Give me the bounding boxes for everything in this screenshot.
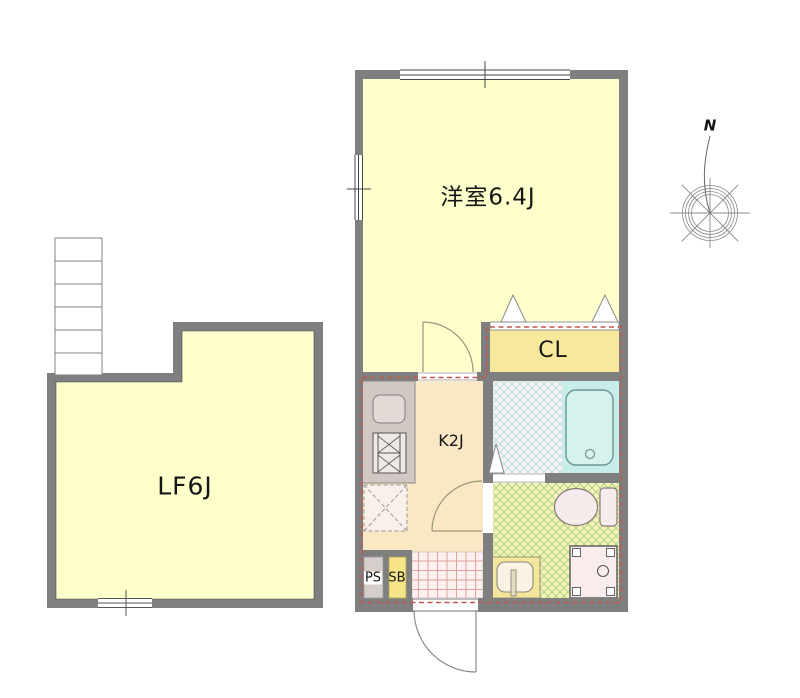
compass bbox=[670, 136, 750, 248]
entrance-tile bbox=[412, 552, 483, 598]
washing-machine-pan bbox=[570, 546, 617, 598]
floor-plan-canvas: 洋室6.4J LF6J CL K2J PS SB N bbox=[0, 0, 800, 698]
north-label: N bbox=[704, 119, 717, 134]
closet-label: CL bbox=[538, 340, 568, 362]
toilet-bowl bbox=[555, 489, 598, 526]
shoe-box-label: SB bbox=[388, 572, 405, 585]
kitchen-counter bbox=[362, 381, 415, 483]
north-needle bbox=[704, 136, 710, 213]
kitchen-sink bbox=[373, 395, 405, 423]
entrance-door bbox=[414, 610, 476, 672]
loft-label: LF6J bbox=[157, 474, 213, 499]
gas-stove-icon bbox=[373, 433, 406, 473]
western-room-label: 洋室6.4J bbox=[440, 187, 535, 210]
kitchen-label: K2J bbox=[438, 433, 463, 449]
loft-building bbox=[47, 238, 323, 616]
bathtub bbox=[566, 390, 613, 465]
refrigerator-space bbox=[364, 485, 407, 531]
toilet-tank bbox=[600, 488, 617, 526]
floor-plan-drawing bbox=[0, 0, 800, 698]
basin-faucet bbox=[511, 570, 516, 596]
toilet bbox=[555, 488, 618, 526]
wash-basin bbox=[491, 557, 540, 598]
bathroom-floor bbox=[493, 381, 562, 473]
pipe-space-label: PS bbox=[364, 572, 382, 585]
stairs bbox=[55, 238, 102, 375]
